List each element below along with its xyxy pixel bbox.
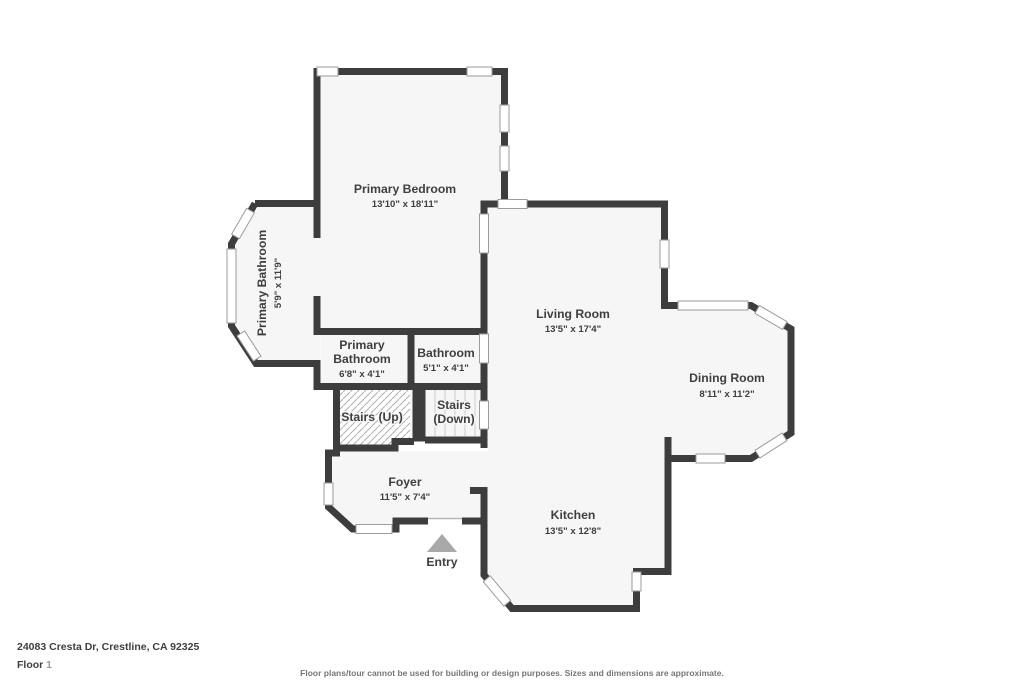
primary-bathroom-dims: 6'8" x 4'1" <box>339 369 385 380</box>
floor-plan: Primary Bedroom 13'10" x 18'11" Primary … <box>0 0 1024 683</box>
window-icon <box>500 105 509 132</box>
dining-room-name: Dining Room <box>689 371 765 385</box>
primary-bedroom-name: Primary Bedroom <box>354 182 456 196</box>
window-icon <box>660 240 669 268</box>
window-icon <box>696 454 725 463</box>
window-icon <box>317 67 338 76</box>
property-address: 24083 Cresta Dr, Crestline, CA 92325 <box>17 641 199 653</box>
window-icon <box>500 146 509 171</box>
window-icon <box>480 214 489 253</box>
bathroom-dims: 5'1" x 4'1" <box>423 363 469 374</box>
stairs-down-name-line1: Stairs <box>437 398 471 412</box>
primary-bedroom-dims: 13'10" x 18'11" <box>372 199 438 210</box>
window-icon <box>498 200 527 209</box>
primary-bathroom-bay-name: Primary Bathroom <box>255 230 269 336</box>
living-room-name: Living Room <box>536 307 610 321</box>
disclaimer-text: Floor plans/tour cannot be used for buil… <box>0 668 1024 678</box>
window-icon <box>356 525 392 534</box>
window-icon <box>632 572 641 591</box>
door-opening-icon <box>480 401 489 429</box>
dining-room-dims: 8'11" x 11'2" <box>699 389 754 400</box>
window-icon <box>227 249 236 323</box>
foyer-dims: 11'5" x 7'4" <box>380 492 430 503</box>
door-opening-icon <box>480 334 489 363</box>
entry-marker-icon <box>427 534 457 552</box>
stairs-up-name: Stairs (Up) <box>341 410 403 424</box>
primary-bathroom-name-line2: Bathroom <box>333 352 391 366</box>
room-label-stairs-up: Stairs (Up) <box>341 410 403 424</box>
entry-label: Entry <box>426 555 457 569</box>
room-label-primary-bathroom: Primary Bathroom 6'8" x 4'1" <box>333 338 391 380</box>
stairs-down-name-line2: (Down) <box>433 412 474 426</box>
window-icon <box>324 483 333 505</box>
living-room-dims: 13'5" x 17'4" <box>545 324 601 335</box>
kitchen-name: Kitchen <box>551 508 596 522</box>
room-label-stairs-down: Stairs (Down) <box>433 398 474 426</box>
kitchen-dims: 13'5" x 12'8" <box>545 526 601 537</box>
window-icon <box>678 301 748 310</box>
foyer-name: Foyer <box>388 475 421 489</box>
entry-name: Entry <box>426 555 457 569</box>
primary-bathroom-bay-dims: 5'9" x 11'9" <box>273 258 284 308</box>
bathroom-name: Bathroom <box>417 346 475 360</box>
primary-bathroom-name-line1: Primary <box>339 338 385 352</box>
window-icon <box>467 67 492 76</box>
